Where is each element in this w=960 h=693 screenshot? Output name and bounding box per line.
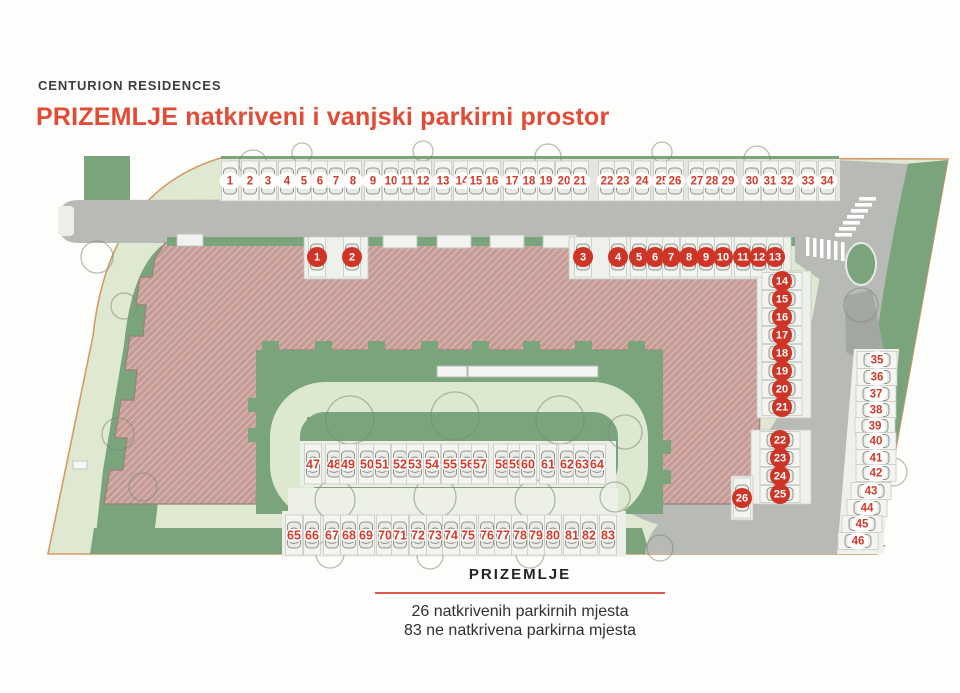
svg-text:25: 25 xyxy=(774,489,786,501)
svg-text:63: 63 xyxy=(575,458,589,472)
svg-text:28: 28 xyxy=(706,176,719,188)
svg-text:11: 11 xyxy=(401,176,414,188)
parking-spot-outdoor-right-column-37: 37 xyxy=(856,385,896,402)
svg-text:55: 55 xyxy=(443,458,457,472)
svg-text:49: 49 xyxy=(341,458,355,472)
parking-spot-covered-right-upper-18: 18 xyxy=(762,343,802,363)
svg-text:77: 77 xyxy=(496,529,510,543)
parking-spot-outdoor-right-column-41: 41 xyxy=(856,449,896,466)
parking-spot-covered-right-upper-21: 21 xyxy=(762,397,802,417)
svg-text:7: 7 xyxy=(668,252,674,264)
svg-text:7: 7 xyxy=(333,176,339,188)
parking-spot-covered-right-lower-22: 22 xyxy=(760,430,800,450)
parking-spot-outdoor-mid-row-50: 50 xyxy=(359,444,376,484)
svg-text:4: 4 xyxy=(615,252,622,264)
svg-text:61: 61 xyxy=(541,458,555,472)
svg-text:6: 6 xyxy=(652,252,658,264)
parking-spot-outdoor-top-row-26: 26 xyxy=(665,161,686,201)
svg-text:9: 9 xyxy=(703,252,709,264)
svg-text:52: 52 xyxy=(393,458,407,472)
parking-spot-outdoor-bottom-row-74: 74 xyxy=(443,515,460,555)
parking-spot-outdoor-bottom-row-76: 76 xyxy=(479,515,496,555)
svg-text:82: 82 xyxy=(582,529,596,543)
parking-spot-outdoor-mid-row-53: 53 xyxy=(407,444,424,484)
parking-spot-outdoor-bottom-row-68: 68 xyxy=(341,515,358,555)
parking-spot-outdoor-right-column-44: 44 xyxy=(847,499,887,516)
traffic-island xyxy=(846,243,876,285)
svg-text:57: 57 xyxy=(473,458,487,472)
svg-text:44: 44 xyxy=(861,503,874,515)
parking-spot-outdoor-top-row-19: 19 xyxy=(536,161,557,201)
parking-spot-outdoor-mid-row-47: 47 xyxy=(305,444,322,484)
parking-spot-outdoor-bottom-row-81: 81 xyxy=(564,515,581,555)
svg-text:39: 39 xyxy=(869,421,882,433)
svg-text:2: 2 xyxy=(349,252,355,264)
parking-spot-outdoor-top-row-34: 34 xyxy=(817,161,838,201)
svg-text:38: 38 xyxy=(870,405,883,417)
svg-text:30: 30 xyxy=(746,176,759,188)
svg-text:32: 32 xyxy=(781,176,794,188)
parking-spot-covered-right-lower-25: 25 xyxy=(760,484,800,504)
svg-text:16: 16 xyxy=(486,176,499,188)
parking-spot-outdoor-bottom-row-80: 80 xyxy=(545,515,562,555)
svg-text:37: 37 xyxy=(870,389,883,401)
parking-spot-outdoor-top-row-24: 24 xyxy=(632,161,653,201)
svg-text:6: 6 xyxy=(317,176,323,188)
svg-text:10: 10 xyxy=(717,252,729,264)
svg-text:15: 15 xyxy=(470,176,483,188)
parking-spot-outdoor-bottom-row-82: 82 xyxy=(581,515,598,555)
courtyard-lawn xyxy=(307,417,607,445)
svg-text:4: 4 xyxy=(284,176,291,188)
parking-spot-outdoor-bottom-row-70: 70 xyxy=(377,515,394,555)
svg-text:78: 78 xyxy=(513,529,527,543)
svg-text:3: 3 xyxy=(265,176,271,188)
parking-spot-covered-right-lower-23: 23 xyxy=(760,448,800,468)
road-end-cap xyxy=(58,206,74,236)
svg-text:42: 42 xyxy=(870,468,883,480)
svg-text:20: 20 xyxy=(776,384,788,396)
parking-spot-outdoor-right-column-39: 39 xyxy=(855,417,895,434)
parking-spot-outdoor-bottom-row-71: 71 xyxy=(392,515,409,555)
svg-text:17: 17 xyxy=(776,330,788,342)
parking-spot-outdoor-top-row-12: 12 xyxy=(413,161,434,201)
parking-spot-outdoor-right-column-35: 35 xyxy=(857,351,897,368)
svg-text:26: 26 xyxy=(736,493,748,505)
parking-spot-outdoor-mid-row-51: 51 xyxy=(374,444,391,484)
svg-text:48: 48 xyxy=(327,458,341,472)
svg-text:53: 53 xyxy=(408,458,422,472)
svg-text:21: 21 xyxy=(574,176,587,188)
svg-text:66: 66 xyxy=(305,529,319,543)
svg-text:54: 54 xyxy=(425,458,439,472)
parking-spot-outdoor-top-row-2: 2 xyxy=(240,161,261,201)
svg-text:36: 36 xyxy=(871,372,884,384)
legend-title: PRIZEMLJE xyxy=(320,566,720,583)
parking-spot-outdoor-mid-row-54: 54 xyxy=(424,444,441,484)
parking-spot-outdoor-mid-row-62: 62 xyxy=(559,444,576,484)
parking-spot-outdoor-top-row-23: 23 xyxy=(613,161,634,201)
parking-spot-covered-row-3: 3 xyxy=(573,237,593,277)
parking-spot-outdoor-mid-row-57: 57 xyxy=(472,444,489,484)
parking-spot-outdoor-right-column-42: 42 xyxy=(856,464,896,481)
svg-text:27: 27 xyxy=(691,176,704,188)
svg-text:19: 19 xyxy=(540,176,553,188)
svg-text:34: 34 xyxy=(821,176,834,188)
svg-text:19: 19 xyxy=(776,366,788,378)
svg-text:75: 75 xyxy=(461,529,475,543)
parking-spot-outdoor-top-row-16: 16 xyxy=(482,161,503,201)
svg-text:5: 5 xyxy=(301,176,308,188)
svg-text:3: 3 xyxy=(580,252,586,264)
svg-text:12: 12 xyxy=(417,176,430,188)
parking-spot-outdoor-right-column-40: 40 xyxy=(856,432,896,449)
parking-spot-outdoor-top-row-29: 29 xyxy=(718,161,739,201)
legend-covered-count: 26 natkrivenih parkirnih mjesta xyxy=(320,602,720,621)
svg-text:58: 58 xyxy=(495,458,509,472)
svg-text:1: 1 xyxy=(227,176,234,188)
parking-spot-outdoor-right-column-36: 36 xyxy=(857,368,897,385)
parking-spot-outdoor-top-row-32: 32 xyxy=(777,161,798,201)
svg-text:71: 71 xyxy=(393,529,407,543)
svg-text:29: 29 xyxy=(722,176,735,188)
parking-spot-covered-right-upper-16: 16 xyxy=(762,307,802,327)
parking-spot-covered-single-26: 26 xyxy=(732,478,752,518)
svg-text:65: 65 xyxy=(287,529,301,543)
parking-spot-outdoor-top-row-8: 8 xyxy=(343,161,364,201)
svg-text:31: 31 xyxy=(764,176,777,188)
svg-text:60: 60 xyxy=(521,458,535,472)
svg-text:50: 50 xyxy=(360,458,374,472)
parking-spot-outdoor-mid-row-60: 60 xyxy=(520,444,537,484)
parking-spot-outdoor-top-row-9: 9 xyxy=(363,161,384,201)
parking-spot-outdoor-top-row-33: 33 xyxy=(798,161,819,201)
svg-text:40: 40 xyxy=(870,436,883,448)
parking-spot-outdoor-bottom-row-65: 65 xyxy=(286,515,303,555)
svg-text:14: 14 xyxy=(776,276,789,288)
parking-spot-outdoor-top-row-21: 21 xyxy=(570,161,591,201)
svg-text:62: 62 xyxy=(560,458,574,472)
svg-text:8: 8 xyxy=(350,176,357,188)
svg-text:22: 22 xyxy=(601,176,614,188)
svg-text:70: 70 xyxy=(378,529,392,543)
parking-spot-outdoor-bottom-row-73: 73 xyxy=(427,515,444,555)
parking-spot-outdoor-right-column-45: 45 xyxy=(842,515,882,532)
parking-spot-covered-row-10: 10 xyxy=(713,237,733,277)
svg-text:1: 1 xyxy=(314,252,320,264)
parking-spot-outdoor-right-column-46: 46 xyxy=(838,532,878,549)
svg-text:79: 79 xyxy=(529,529,543,543)
svg-text:76: 76 xyxy=(480,529,494,543)
parking-spot-outdoor-bottom-row-75: 75 xyxy=(460,515,477,555)
svg-text:5: 5 xyxy=(636,252,642,264)
parking-spot-outdoor-top-row-30: 30 xyxy=(742,161,763,201)
svg-text:9: 9 xyxy=(370,176,376,188)
parking-spot-covered-right-upper-15: 15 xyxy=(762,289,802,309)
courtyard xyxy=(248,341,671,514)
svg-text:72: 72 xyxy=(411,529,425,543)
parking-spot-covered-right-upper-17: 17 xyxy=(762,325,802,345)
parking-spot-outdoor-top-row-3: 3 xyxy=(258,161,279,201)
grass-top-left-block xyxy=(84,156,130,200)
svg-text:16: 16 xyxy=(776,312,788,324)
legend-outdoor-count: 83 ne natkrivena parkirna mjesta xyxy=(320,621,720,640)
svg-text:23: 23 xyxy=(774,453,786,465)
svg-text:24: 24 xyxy=(774,471,787,483)
svg-text:15: 15 xyxy=(776,294,788,306)
parking-spot-covered-row-7: 7 xyxy=(661,237,681,277)
svg-text:46: 46 xyxy=(852,536,865,548)
svg-text:68: 68 xyxy=(342,529,356,543)
parking-spot-outdoor-right-column-43: 43 xyxy=(851,482,891,499)
svg-text:10: 10 xyxy=(385,176,398,188)
svg-text:12: 12 xyxy=(753,252,765,264)
parking-spot-outdoor-mid-row-52: 52 xyxy=(392,444,409,484)
svg-text:13: 13 xyxy=(769,252,781,264)
svg-text:35: 35 xyxy=(871,355,884,367)
svg-text:67: 67 xyxy=(325,529,339,543)
parking-spot-outdoor-mid-row-63: 63 xyxy=(574,444,591,484)
svg-text:2: 2 xyxy=(247,176,253,188)
svg-text:24: 24 xyxy=(636,176,649,188)
svg-text:69: 69 xyxy=(359,529,373,543)
svg-text:41: 41 xyxy=(870,453,883,465)
parking-spot-outdoor-mid-row-49: 49 xyxy=(340,444,357,484)
parking-spot-outdoor-right-column-38: 38 xyxy=(856,401,896,418)
parking-spot-outdoor-bottom-row-78: 78 xyxy=(512,515,529,555)
svg-text:74: 74 xyxy=(444,529,458,543)
parking-spot-covered-row-1: 1 xyxy=(307,237,327,277)
svg-text:81: 81 xyxy=(565,529,579,543)
svg-text:83: 83 xyxy=(601,529,615,543)
parking-spot-covered-right-lower-24: 24 xyxy=(760,466,800,486)
parking-spot-outdoor-mid-row-61: 61 xyxy=(540,444,557,484)
parking-spot-outdoor-bottom-row-79: 79 xyxy=(528,515,545,555)
parking-spot-covered-row-4: 4 xyxy=(608,237,628,277)
svg-text:64: 64 xyxy=(590,458,604,472)
svg-text:23: 23 xyxy=(617,176,630,188)
parking-spot-outdoor-bottom-row-83: 83 xyxy=(600,515,617,555)
svg-text:18: 18 xyxy=(776,348,788,360)
parking-spot-covered-right-upper-20: 20 xyxy=(762,379,802,399)
svg-text:21: 21 xyxy=(776,402,788,414)
parking-spot-outdoor-bottom-row-67: 67 xyxy=(324,515,341,555)
svg-text:73: 73 xyxy=(428,529,442,543)
svg-text:43: 43 xyxy=(865,486,878,498)
parking-spot-outdoor-bottom-row-77: 77 xyxy=(495,515,512,555)
svg-text:26: 26 xyxy=(669,176,682,188)
parking-spot-outdoor-top-row-1: 1 xyxy=(220,161,241,201)
parking-spot-outdoor-mid-row-64: 64 xyxy=(589,444,606,484)
legend: PRIZEMLJE 26 natkrivenih parkirnih mjest… xyxy=(320,566,720,640)
svg-text:33: 33 xyxy=(802,176,815,188)
svg-text:80: 80 xyxy=(546,529,560,543)
svg-text:17: 17 xyxy=(506,176,519,188)
parking-spot-covered-right-upper-19: 19 xyxy=(762,361,802,381)
svg-text:22: 22 xyxy=(774,435,786,447)
parking-spot-outdoor-top-row-13: 13 xyxy=(433,161,454,201)
svg-text:51: 51 xyxy=(375,458,389,472)
utility-box xyxy=(73,461,87,469)
svg-text:20: 20 xyxy=(558,176,571,188)
svg-text:8: 8 xyxy=(686,252,692,264)
parking-spot-outdoor-bottom-row-72: 72 xyxy=(410,515,427,555)
legend-divider xyxy=(375,592,665,594)
svg-text:45: 45 xyxy=(856,519,869,531)
svg-text:18: 18 xyxy=(523,176,536,188)
svg-text:11: 11 xyxy=(737,252,749,264)
pergola xyxy=(437,366,598,377)
parking-spot-outdoor-bottom-row-69: 69 xyxy=(358,515,375,555)
svg-text:47: 47 xyxy=(306,458,320,472)
svg-text:13: 13 xyxy=(437,176,450,188)
parking-spot-covered-right-upper-14: 14 xyxy=(762,271,802,291)
courtyard-white-walk xyxy=(288,488,618,513)
parking-spot-outdoor-mid-row-55: 55 xyxy=(442,444,459,484)
parking-spot-outdoor-bottom-row-66: 66 xyxy=(304,515,321,555)
parking-spot-covered-row-2: 2 xyxy=(342,237,362,277)
